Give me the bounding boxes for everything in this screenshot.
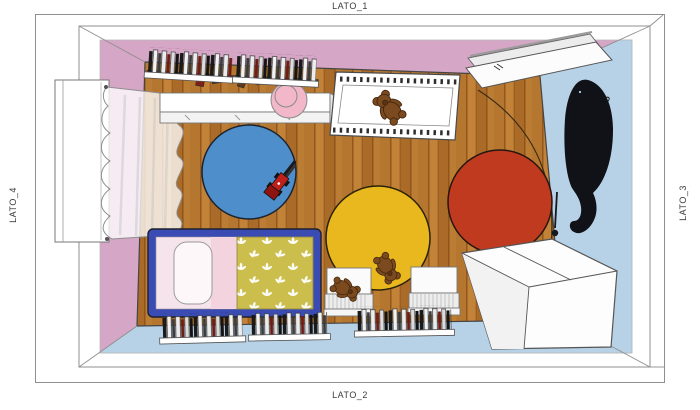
pillow: [174, 242, 212, 304]
pink-pouf: [271, 82, 307, 118]
red-round-rug: [448, 150, 552, 254]
label-lato-1: LATO_1: [332, 1, 368, 11]
bed: [148, 229, 321, 317]
blue-round-rug: [202, 125, 296, 219]
whale-eye: [579, 91, 581, 93]
room-plan-canvas: LATO_1 LATO_2 LATO_4 LATO_3: [0, 0, 700, 410]
floor-bookshelf-3: [354, 305, 455, 337]
floor-bookshelf-1: [159, 312, 246, 344]
floral-duvet: [237, 237, 313, 309]
floor-plan: LATO_1 LATO_2 LATO_4 LATO_3: [0, 0, 700, 410]
crib: [330, 72, 460, 140]
window: [55, 80, 109, 242]
label-lato-3: LATO_3: [678, 185, 688, 221]
wall-bookshelf-1: [144, 47, 236, 83]
wall-bookshelf-2: [232, 52, 320, 87]
floor-bookshelf-2: [248, 310, 331, 341]
label-lato-2: LATO_2: [332, 390, 368, 400]
label-lato-4: LATO_4: [8, 187, 18, 223]
sideboard: [160, 93, 341, 123]
curtain-rod-end-bottom: [105, 237, 109, 241]
curtain-rod-end-top: [104, 85, 108, 89]
bed-sheet: [211, 237, 237, 309]
